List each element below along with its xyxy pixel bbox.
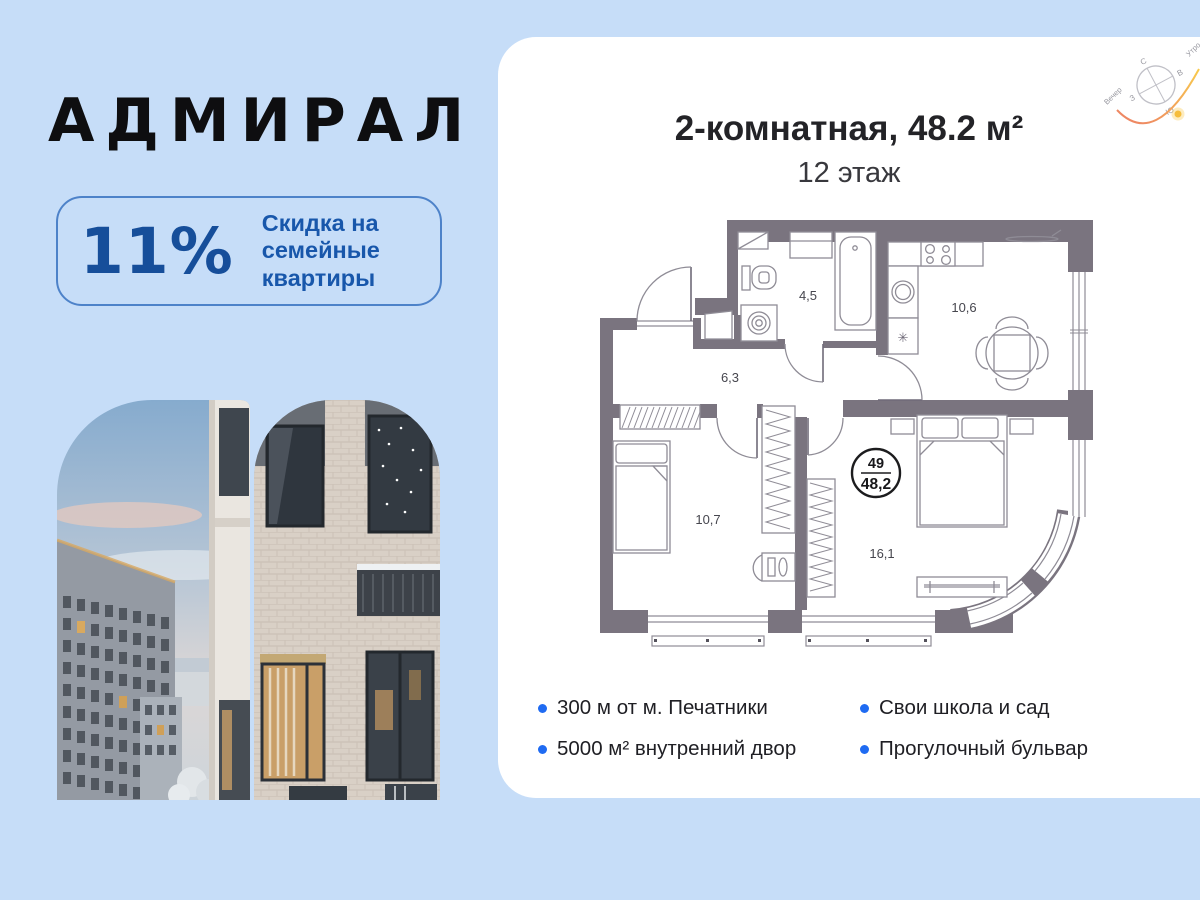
washing-machine [741,305,777,341]
room-label-hallway: 6,3 [721,370,739,385]
apartment-floor: 12 этаж [498,157,1200,190]
feature-boulevard: Прогулочный бульвар [860,737,1088,761]
bed-single [613,441,670,553]
feature-yard: 5000 м² внутренний двор [538,737,796,761]
offer-card: 2-комнатная, 48.2 м² 12 этаж С В Ю З [498,37,1200,798]
brand-logo: АДМИРАЛ [48,86,450,156]
vanity [790,232,832,258]
desk-chair [753,555,762,581]
bullet-icon [538,704,547,713]
room-label-bedroom-main: 16,1 [869,546,894,561]
unit-area: 48,2 [861,476,891,493]
compass-east: В [1176,68,1185,78]
compass-west: З [1128,93,1137,103]
discount-percent: 11% [80,215,234,288]
bullet-icon [860,704,869,713]
nightstand [891,419,914,434]
svg-text:✳: ✳ [898,330,909,345]
bullet-icon [538,745,547,754]
room-label-kitchen: 10,6 [951,300,976,315]
shoe-cabinet [705,311,732,339]
sun-morning-label: Утро [1184,40,1200,58]
room-label-bedroom: 10,7 [695,512,720,527]
photo-white-building [209,400,254,800]
discount-text: Скидка на семейные квартиры [262,210,380,292]
toilet-tank [742,266,750,290]
photo-brick-facade [254,400,440,800]
feature-school: Свои школа и сад [860,696,1049,720]
floor-plan: ✳ [590,215,1100,650]
unit-number: 49 [868,456,884,472]
unit-badge: 49 48,2 [852,449,900,497]
compass-north: С [1139,56,1149,67]
ad-banner: АДМИРАЛ 11% Скидка на семейные квартиры [0,0,1200,900]
feature-metro: 300 м от м. Печатники [538,696,768,720]
building-photo [57,400,440,800]
nightstand [1010,419,1033,434]
room-label-bathroom: 4,5 [799,288,817,303]
sun-icon [1175,111,1182,118]
sun-evening-label: Вечер [1102,85,1123,106]
bullet-icon [860,745,869,754]
discount-badge: 11% Скидка на семейные квартиры [56,196,442,306]
compass-icon: С В Ю З Вечер Утро [1095,25,1200,155]
